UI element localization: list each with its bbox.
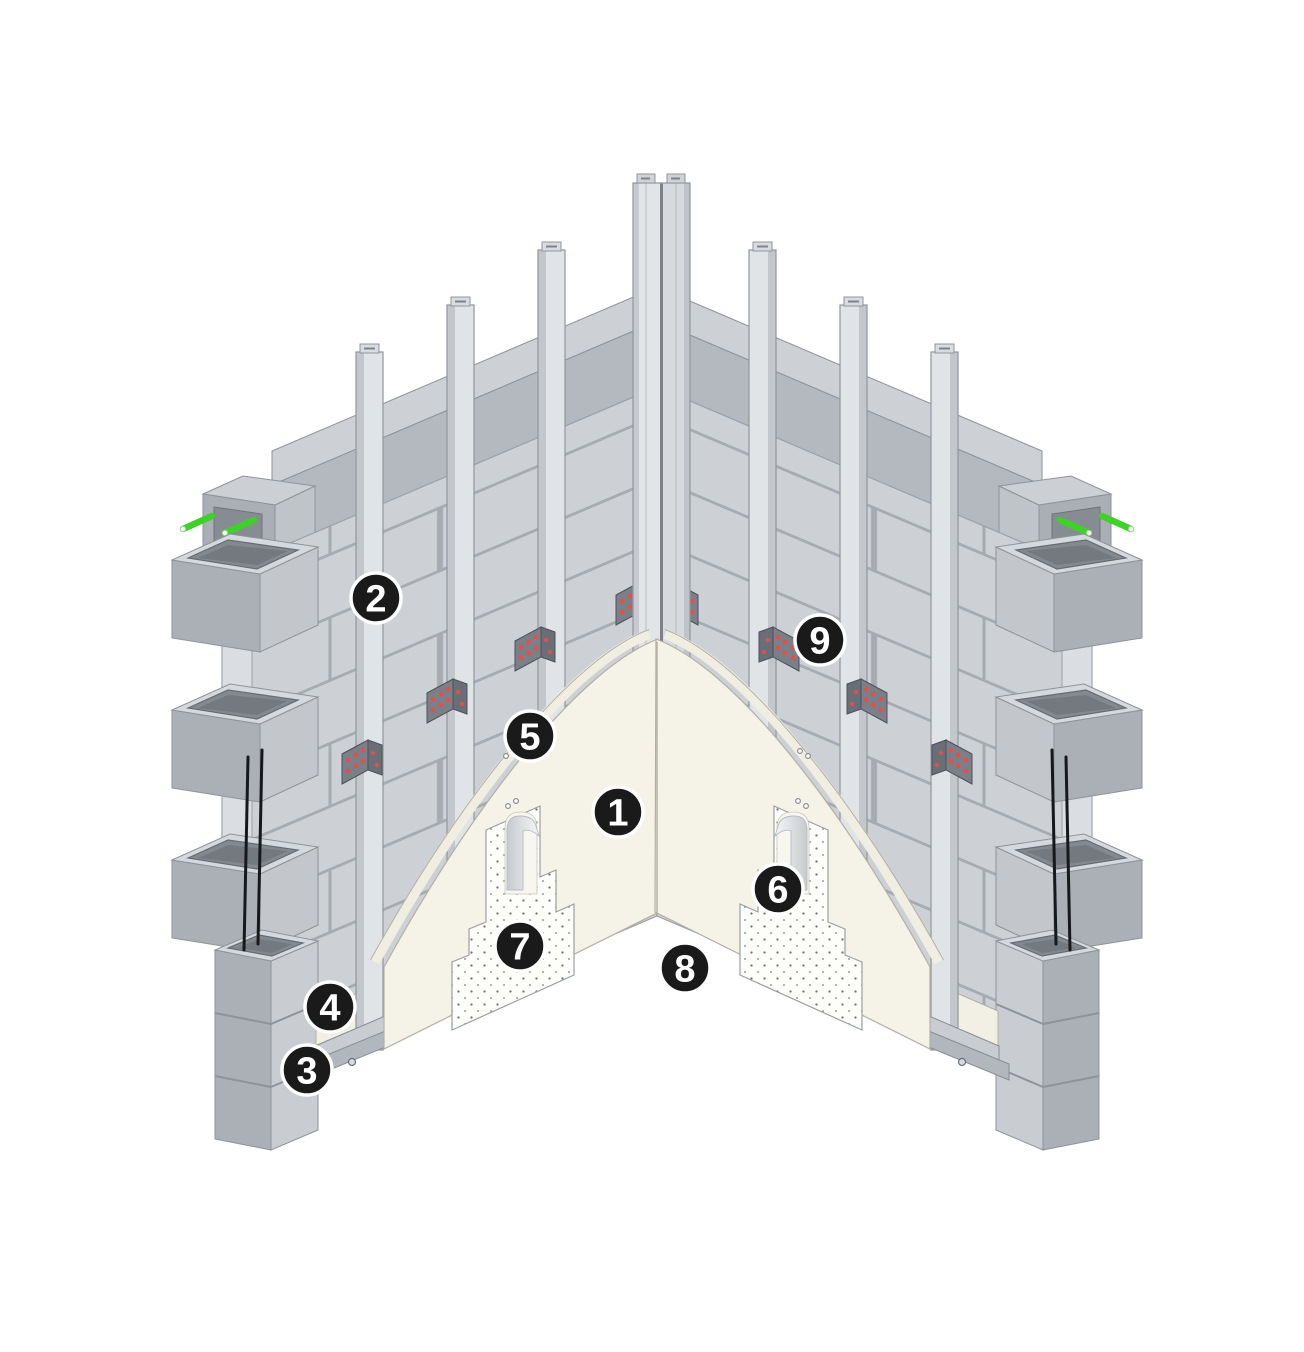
svg-text:4: 4 [319,988,340,1030]
callout-2: 2 [351,573,401,623]
callout-7: 7 [495,921,545,971]
callout-4: 4 [305,982,355,1032]
svg-text:3: 3 [296,1051,317,1093]
corner-stud-pair [633,174,690,703]
svg-text:1: 1 [607,793,628,835]
svg-text:5: 5 [519,717,540,759]
svg-text:6: 6 [767,870,788,912]
callout-5: 5 [505,711,555,761]
callout-1: 1 [593,787,643,837]
callout-9: 9 [795,615,845,665]
callout-6: 6 [753,864,803,914]
svg-text:8: 8 [674,949,695,991]
callout-3: 3 [282,1045,332,1095]
wall-corner-isometric-diagram: 123456789 [0,0,1304,1352]
svg-text:2: 2 [365,579,386,621]
svg-text:9: 9 [809,621,830,663]
callout-8: 8 [660,943,710,993]
svg-text:7: 7 [509,927,530,969]
diagram-canvas: 123456789 [0,0,1304,1352]
